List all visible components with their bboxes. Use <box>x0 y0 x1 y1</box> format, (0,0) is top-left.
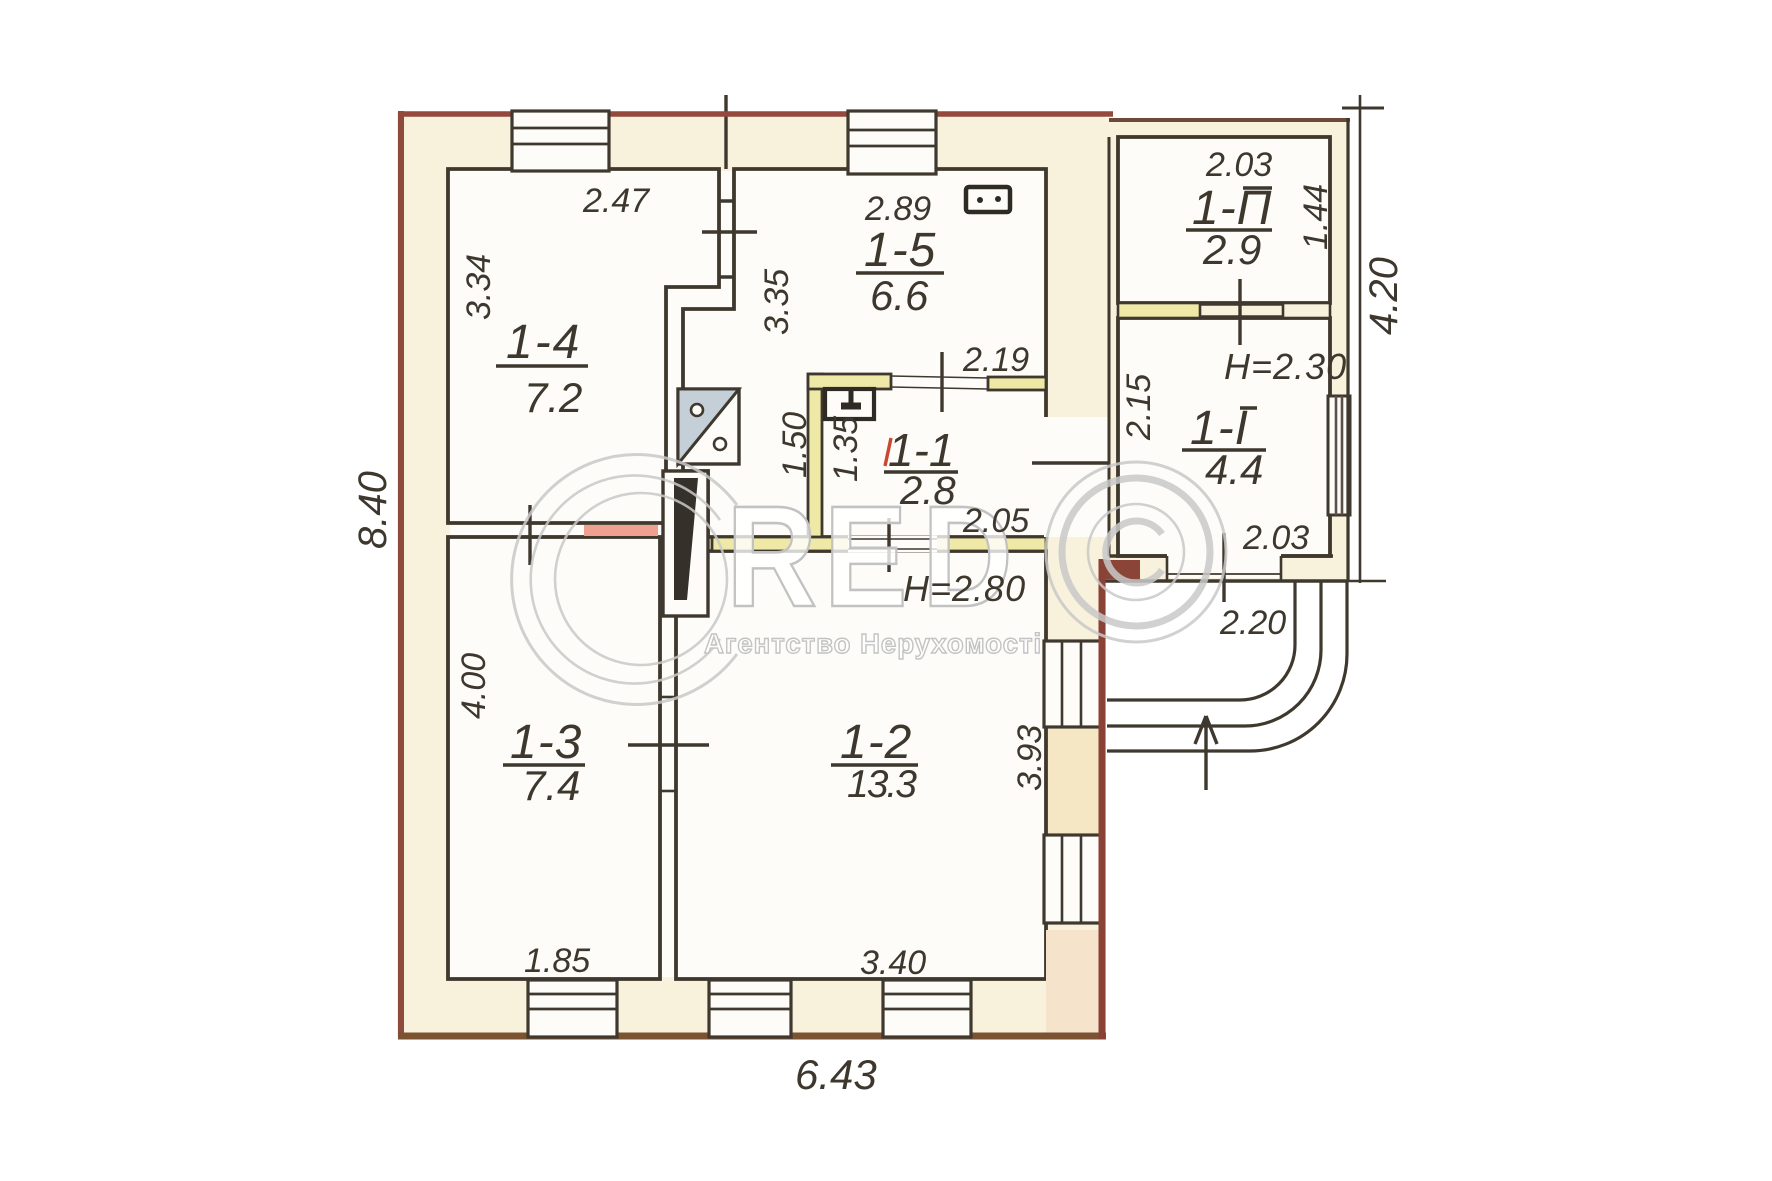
svg-text:2.03: 2.03 <box>1205 146 1272 184</box>
svg-text:3.40: 3.40 <box>860 944 926 982</box>
svg-text:2.15: 2.15 <box>1120 374 1158 441</box>
svg-text:8.40: 8.40 <box>351 471 395 549</box>
svg-text:3.35: 3.35 <box>758 269 796 335</box>
svg-text:1.44: 1.44 <box>1297 184 1335 250</box>
svg-text:1-2: 1-2 <box>840 716 912 769</box>
svg-text:2.19: 2.19 <box>962 341 1029 379</box>
svg-text:1-5: 1-5 <box>864 224 936 277</box>
svg-text:H=2.80: H=2.80 <box>903 568 1026 609</box>
svg-text:2.47: 2.47 <box>582 182 650 220</box>
svg-text:2.05: 2.05 <box>962 502 1029 540</box>
svg-text:6.43: 6.43 <box>795 1051 877 1098</box>
svg-text:1.50: 1.50 <box>776 412 814 478</box>
svg-text:2.9: 2.9 <box>1202 226 1261 273</box>
svg-text:6.6: 6.6 <box>870 272 929 319</box>
svg-text:E: E <box>824 476 908 637</box>
svg-text:R: R <box>726 476 816 637</box>
svg-text:2.20: 2.20 <box>1219 604 1286 642</box>
svg-text:1-4: 1-4 <box>506 316 581 369</box>
svg-text:1.35: 1.35 <box>827 416 865 482</box>
svg-text:3.93: 3.93 <box>1011 725 1049 791</box>
svg-text:13.3: 13.3 <box>847 763 917 806</box>
svg-text:H=2.30: H=2.30 <box>1224 346 1347 387</box>
svg-text:2.03: 2.03 <box>1242 519 1309 557</box>
svg-text:4.4: 4.4 <box>1205 446 1263 493</box>
svg-text:7.4: 7.4 <box>522 762 580 809</box>
svg-text:3.34: 3.34 <box>460 254 498 320</box>
svg-text:2.8: 2.8 <box>899 469 956 513</box>
svg-text:1.85: 1.85 <box>524 942 590 980</box>
svg-text:7.2: 7.2 <box>524 374 582 421</box>
svg-text:4.00: 4.00 <box>455 653 493 719</box>
svg-text:Агентство Нерухомості: Агентство Нерухомості <box>704 628 1042 659</box>
svg-text:2.89: 2.89 <box>864 190 931 228</box>
svg-text:4.20: 4.20 <box>1362 257 1406 335</box>
